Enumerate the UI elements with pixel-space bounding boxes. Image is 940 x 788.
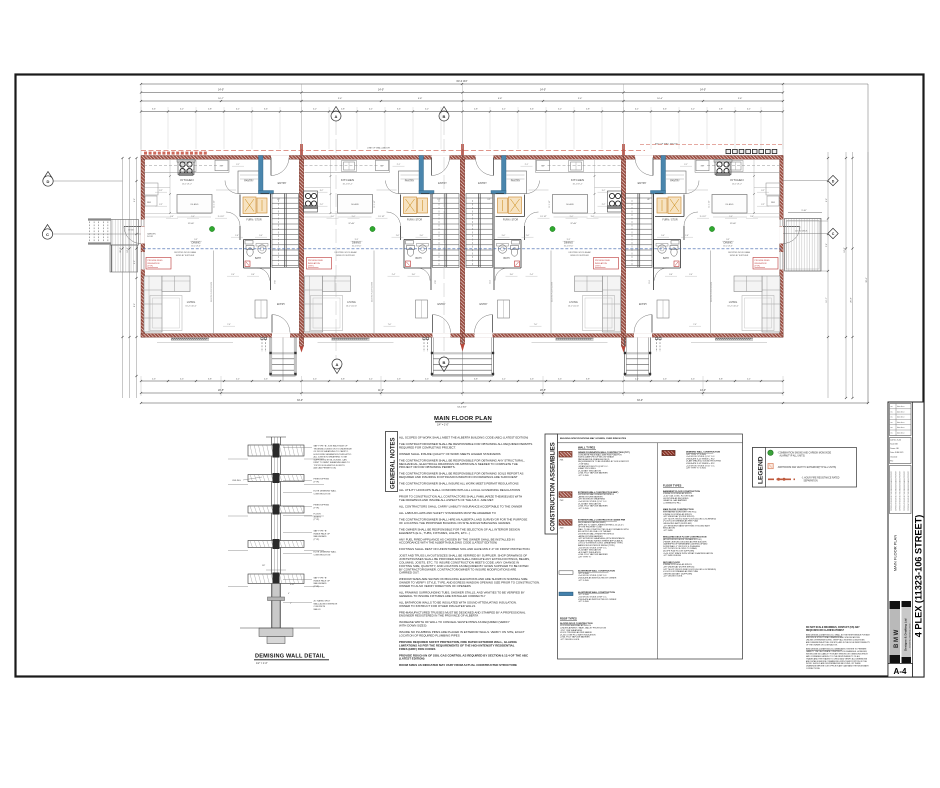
svg-text:PANTRY: PANTRY [405,180,415,183]
svg-text:9'-3": 9'-3" [567,239,571,241]
svg-text:11'-1 1/2": 11'-1 1/2" [709,200,711,208]
svg-text:C: C [46,232,49,237]
svg-text:16'-2"x10'-6": 16'-2"x10'-6" [568,306,579,308]
svg-text:5'-0": 5'-0" [502,235,506,237]
svg-text:PROVIDE RIGID: PROVIDE RIGID [148,260,164,262]
svg-text:FURN / STOR: FURN / STOR [662,219,678,222]
svg-text:FIRES (HIRF) FIRE CODES: FIRES (HIRF) FIRE CODES [399,647,436,651]
svg-text:11'-1 1/2": 11'-1 1/2" [549,200,551,208]
svg-text:SUPPORTED BY BLOCKING. CAN: SUPPORTED BY BLOCKING. CAN [314,458,348,461]
svg-text:BATH: BATH [504,257,510,260]
svg-text:GENERAL NOTES: GENERAL NOTES [391,437,397,489]
svg-text:ACCORDANCE WITH THE ALBERTA BU: ACCORDANCE WITH THE ALBERTA BUILDING COD… [399,541,497,545]
svg-text:2'-8": 2'-8" [341,109,345,111]
svg-text:14'-0": 14'-0" [700,89,706,92]
svg-text:4'-1": 4'-1" [502,109,506,111]
svg-text:(TYP.): (TYP.) [314,481,320,483]
svg-text:1'-6": 1'-6" [235,235,239,237]
svg-text:3'-1 1/2": 3'-1 1/2" [218,216,225,218]
svg-text:-1/2" GWB CEILING: -1/2" GWB CEILING [663,555,681,557]
svg-text:File:: File: [890,461,894,463]
svg-text:CLO: CLO [434,280,436,284]
svg-text:ALL LABOUR LAWS AND SAFETY STA: ALL LABOUR LAWS AND SAFETY STANDARDS MUS… [399,511,497,515]
svg-text:2'-8": 2'-8" [719,109,723,111]
svg-text:KITCHEN: KITCHEN [730,178,743,182]
svg-text:11'-6": 11'-6" [378,389,384,392]
svg-text:5'-5": 5'-5" [691,379,695,381]
svg-text:11'-1 1/2": 11'-1 1/2" [214,200,216,208]
svg-text:(AS CAN PERMITS US): (AS CAN PERMITS US) [314,467,337,470]
svg-text:3'-1 1/2": 3'-1 1/2" [700,216,707,218]
svg-text:SAF TYPE "B": SAF TYPE "B" [314,577,328,580]
svg-text:16'-2"x10'-6": 16'-2"x10'-6" [346,306,357,308]
svg-text:REQUIRED FOR COMPLETING PROJEC: REQUIRED FOR COMPLETING PROJECT. [399,445,456,449]
svg-text:FIRESTOPPING: FIRESTOPPING [314,505,330,507]
svg-text:2'-6": 2'-6" [738,98,743,100]
svg-text:A-4: A-4 [894,667,907,676]
svg-text:ALL SCOPES OF WORK SHALL MEET: ALL SCOPES OF WORK SHALL MEET THE ALBERT… [399,436,528,440]
svg-text:2'-3": 2'-3" [530,379,534,381]
svg-text:5'-2": 5'-2" [313,109,317,111]
svg-text:14'-0": 14'-0" [700,389,706,392]
svg-text:34'-0": 34'-0" [297,399,303,402]
svg-text:2'-3": 2'-3" [152,379,156,381]
svg-text:3'-2": 3'-2" [761,190,765,192]
svg-text:B: B [443,114,446,119]
svg-text:OF LOCATING THE PROPOSED BUILD: OF LOCATING THE PROPOSED BUILDING ON SIT… [399,521,510,525]
svg-text:ENGINEER REGISTERED IN THE PRO: ENGINEER REGISTERED IN THE PROVINCE OF A… [399,614,478,618]
svg-text:ENTRY: ENTRY [278,181,287,185]
svg-text:Drawn: GB: Drawn: GB [890,447,899,450]
svg-text:OF ROOF SHEATHING TO CARRY 1: OF ROOF SHEATHING TO CARRY 1 [314,450,350,453]
svg-text:-TW1: -TW1 [559,460,563,462]
svg-text:-1/2" GWB: -1/2" GWB [663,530,673,532]
svg-text:SAF TYPE "B": SAF TYPE "B" [314,530,328,533]
svg-text:DROPPED WOOD BEAM: DROPPED WOOD BEAM [335,251,357,254]
svg-text:THE CONTRACTOR/OWNER SHALL INS: THE CONTRACTOR/OWNER SHALL INSURE ALL WO… [399,482,519,486]
svg-text:14'-0": 14'-0" [218,89,224,92]
svg-text:INSIDE FACE OF: INSIDE FACE OF [314,580,331,583]
svg-text:2'-1": 2'-1" [397,164,401,166]
svg-text:2'-8": 2'-8" [474,109,478,111]
svg-text:CONSTRUCTION: CONSTRUCTION [314,555,331,557]
svg-text:38'-4": 38'-4" [866,277,868,282]
svg-text:D: D [832,179,835,183]
svg-text:DROPPED WOOD BEAM: DROPPED WOOD BEAM [174,251,196,254]
svg-text:16'-2"x10'-6": 16'-2"x10'-6" [727,306,738,308]
svg-text:4-1/2": 4-1/2" [290,584,295,586]
svg-text:DO NOT SCALE DRAWINGS, CONTACT: DO NOT SCALE DRAWINGS, CONTACT (US) ANY [806,626,860,629]
svg-text:-5/8" TYPE "X" G.W.B.: -5/8" TYPE "X" G.W.B. [686,468,707,470]
svg-text:5'-5": 5'-5" [180,379,184,381]
svg-text:ROOM SIZES AS INDICATED MAY VA: ROOM SIZES AS INDICATED MAY VARY FROM AC… [399,663,517,667]
svg-text:3'-6": 3'-6" [251,274,255,276]
svg-text:JOISTS: JOISTS [314,517,322,519]
svg-text:5'-0": 5'-0" [420,235,424,237]
svg-text:ALL JOINTS IN SHEATHING TO BE: ALL JOINTS IN SHEATHING TO BE [314,456,348,459]
svg-text:64'-0 3/4": 64'-0 3/4" [457,407,466,409]
svg-text:rev: rev [890,406,892,408]
svg-text:CLO: CLO [490,280,492,284]
svg-text:4'-1": 4'-1" [369,109,373,111]
svg-text:8'-2": 8'-2" [134,303,136,307]
svg-text:ISLAND: ISLAND [191,203,199,206]
svg-text:2'-2": 2'-2" [602,204,606,206]
svg-text:14'-0": 14'-0" [378,89,384,92]
svg-text:ALL UTILITY HOOKUPS SHALL CONF: ALL UTILITY HOOKUPS SHALL CONFORM WITH A… [399,488,520,492]
svg-text:9'-6": 9'-6" [134,198,136,202]
svg-text:5'-2": 5'-2" [691,109,695,111]
svg-text:18'-2": 18'-2" [127,247,129,252]
svg-text:KITCHEN: KITCHEN [341,178,354,182]
svg-text:1/2" = 1'-0": 1/2" = 1'-0" [256,662,268,665]
svg-text:LOCATION OF REQUIRED PLUMBING: LOCATION OF REQUIRED PLUMBING PIPES [399,634,460,638]
svg-text:CONCRETE: CONCRETE [314,606,326,608]
svg-text:FLOOR TYPES: FLOOR TYPES [663,483,682,487]
svg-text:1'-6": 1'-6" [396,235,400,237]
svg-text:5'-2": 5'-2" [558,109,562,111]
svg-text:KITCHEN: KITCHEN [571,178,584,182]
svg-text:ALARM(TYP ALL UNITS): ALARM(TYP ALL UNITS) [780,455,806,458]
svg-text:-1/2" G.W.B.: -1/2" G.W.B. [578,508,589,510]
svg-text:PANTRY: PANTRY [670,180,680,183]
svg-text:5/8": 5/8" [262,565,265,567]
svg-text:PROVIDE RIGID: PROVIDE RIGID [755,260,771,262]
svg-text:1/4" = 1'-0": 1/4" = 1'-0" [437,423,449,426]
svg-text:2'-2": 2'-2" [159,204,163,206]
svg-text:16'-1"x9'-6": 16'-1"x9'-6" [191,246,201,248]
svg-text:-5/8" TYPE "X": -5/8" TYPE "X" [578,557,591,559]
svg-text:2'-4": 2'-4" [392,274,396,276]
svg-text:(TYP.): (TYP.) [314,539,320,541]
svg-text:-1/2" G.W.B.: -1/2" G.W.B. [578,580,589,582]
svg-text:-TW3: -TW3 [559,528,563,530]
svg-text:OWNER SHALL INSURE QUALITY OF: OWNER SHALL INSURE QUALITY OF WORK MEETS… [399,452,501,456]
svg-text:ENTRY: ENTRY [479,303,487,306]
svg-text:2'-2": 2'-2" [761,204,765,206]
svg-text:SIZED BY SUPPLIER: SIZED BY SUPPLIER [336,255,355,257]
svg-text:ENTRY: ENTRY [277,303,285,306]
svg-text:3'-6": 3'-6" [397,109,401,111]
svg-text:2'-1": 2'-1" [747,379,751,381]
svg-text:LINE OF WALL ABOVE: LINE OF WALL ABOVE [367,146,390,149]
svg-text:ELITE DEMISING WALL: ELITE DEMISING WALL [314,551,338,554]
svg-text:INSULATION: INSULATION [595,262,607,265]
svg-text:INSULATION: INSULATION [755,262,767,265]
svg-text:OWNER TO ALSO VERIFY DIRECTION: OWNER TO ALSO VERIFY DIRECTION OF OPENER… [399,584,471,588]
svg-text:5'-8": 5'-8" [418,98,423,100]
svg-text:B: B [443,360,446,365]
svg-text:WALL TYPES: WALL TYPES [578,446,595,450]
svg-text:SAF TYPE "A" JOIN EACH SIDE OF: SAF TYPE "A" JOIN EACH SIDE OF [314,445,349,448]
svg-text:5'-2": 5'-2" [425,109,429,111]
svg-text:9'-3": 9'-3" [726,239,730,241]
svg-text:A: A [336,362,339,367]
svg-text:5'-0": 5'-0" [259,235,263,237]
svg-text:10'-7": 10'-7" [826,297,828,302]
svg-text:ENTRY: ENTRY [638,181,647,185]
svg-text:FURN / STOR: FURN / STOR [246,219,262,222]
svg-text:FRMT TO PAINT SHEATHING AND TO: FRMT TO PAINT SHEATHING AND TO [314,461,351,464]
svg-text:2'-4": 2'-4" [689,274,693,276]
svg-text:HOUR FIRE SEPARATION THRU ATTI: HOUR FIRE SEPARATION THRU ATTIC. [314,453,353,456]
svg-text:18'-2": 18'-2" [844,247,846,252]
svg-text:3'-6": 3'-6" [264,109,268,111]
svg-text:FOOTINGS SHALL REST ON UNDISTU: FOOTINGS SHALL REST ON UNDISTURBED SOIL … [399,547,530,551]
svg-text:ENTRY: ENTRY [437,303,445,306]
svg-text:WITH DOWN SIZES): WITH DOWN SIZES) [399,624,426,628]
svg-text:11-7/8 TJI FLOOR JOISTS: 11-7/8 TJI FLOOR JOISTS [552,281,554,302]
svg-text:11-7/8 TJI FLOOR JOISTS: 11-7/8 TJI FLOOR JOISTS [711,281,713,302]
svg-text:9'-6": 9'-6" [826,198,828,202]
svg-text:CARRIED OUT.: CARRIED OUT. [399,571,420,575]
svg-text:9'-10": 9'-10" [801,210,806,212]
svg-text:FIRESTOPPING: FIRESTOPPING [314,479,330,481]
svg-text:KITCHEN: KITCHEN [180,178,193,182]
svg-text:WALLBOARD: WALLBOARD [314,582,327,585]
svg-text:B M W: B M W [894,629,900,648]
svg-text:rev: rev [890,427,892,429]
svg-text:5'-4": 5'-4" [826,243,828,247]
svg-text:INSULATION: INSULATION [308,262,320,265]
svg-text:BATH: BATH [255,257,261,260]
svg-text:WALLBOARD: WALLBOARD [314,535,327,538]
svg-text:3'-2": 3'-2" [602,190,606,192]
svg-text:26'-8": 26'-8" [120,247,122,252]
svg-text:32"x80": 32"x80" [570,223,577,225]
svg-text:LIVING: LIVING [569,300,578,304]
svg-text:14'-0": 14'-0" [540,89,546,92]
svg-text:20'-5": 20'-5" [540,389,546,392]
svg-text:(LATEST EDITION): (LATEST EDITION) [399,657,425,661]
svg-text:LIVING: LIVING [187,300,196,304]
svg-text:OF THE OWNER OR CONTRACTOR.: OF THE OWNER OR CONTRACTOR. [806,643,838,646]
svg-text:ELITE DEMISING WALL: ELITE DEMISING WALL [314,490,338,493]
svg-text:-1 HOUR FIRE RESISTANCE RATED: -1 HOUR FIRE RESISTANCE RATED [802,476,840,479]
svg-text:ENTRY: ENTRY [639,303,647,306]
svg-text:ISLAND: ISLAND [726,203,734,206]
svg-text:32"x80": 32"x80" [730,223,737,225]
svg-text:MAIN FLOOR PLAN: MAIN FLOOR PLAN [434,416,492,422]
svg-text:PROVIDE RIGID: PROVIDE RIGID [595,260,611,262]
svg-text:CLO: CLO [273,280,275,284]
svg-text:rev: rev [890,417,892,419]
svg-text:4'-2": 4'-2" [134,260,136,264]
svg-text:3'-6": 3'-6" [530,109,534,111]
svg-text:SIZED BY SUPPLIER: SIZED BY SUPPLIER [570,255,589,257]
svg-text:-COMBINATION SMOKE AND CARBON: -COMBINATION SMOKE AND CARBON MONOXIDE [778,451,832,454]
svg-text:7'-0": 7'-0" [693,324,697,326]
svg-text:20'-5": 20'-5" [218,389,224,392]
svg-text:THE DRAWINGS AND INSURE ALL A: THE DRAWINGS AND INSURE ALL ASPECTS OF T… [399,498,494,502]
svg-text:TOP BY NON-VENTED SOFFITS: TOP BY NON-VENTED SOFFITS [314,465,346,467]
svg-text:3'-6": 3'-6" [412,274,416,276]
svg-text:2'-3": 2'-3" [663,379,667,381]
svg-text:rev: rev [890,411,892,413]
svg-text:PANTRY: PANTRY [244,180,254,183]
svg-text:BUILDING SPECIFICATIONS MAY GO: BUILDING SPECIFICATIONS MAY GOVERN, OVER… [560,437,627,440]
svg-text:BATH: BATH [416,257,422,260]
svg-text:ISLAND: ISLAND [566,203,574,206]
svg-text:ALL CONTRACTORS SHALL CARRY LI: ALL CONTRACTORS SHALL CARRY LIABILITY IN… [399,505,522,509]
svg-text:3'-6": 3'-6" [152,109,156,111]
svg-text:Job No: 21-04: Job No: 21-04 [890,440,901,442]
svg-text:2'-1": 2'-1" [684,164,688,166]
svg-text:FLOOR: FLOOR [314,514,322,516]
svg-text:16'-1"x9'-2": 16'-1"x9'-2" [342,184,352,186]
svg-text:(TYP.): (TYP.) [314,519,320,521]
svg-text:16'-1"x9'-6": 16'-1"x9'-6" [723,246,733,248]
svg-text:3'-8": 3'-8" [719,379,723,381]
svg-text:(TYP.): (TYP.) [314,586,320,588]
svg-text:2'-1": 2'-1" [236,164,240,166]
svg-text:26'-8": 26'-8" [851,297,853,302]
svg-text:4'-1": 4'-1" [747,109,751,111]
svg-text:5'-5": 5'-5" [425,379,429,381]
svg-text:10'x10' DECK: 10'x10' DECK [795,231,808,233]
svg-text:rev: rev [890,433,892,435]
svg-text:LIVING: LIVING [729,300,738,304]
svg-text:2'-1": 2'-1" [236,379,240,381]
svg-text:CONSTRUCTION ASSEMBLIES: CONSTRUCTION ASSEMBLIES [551,442,557,531]
svg-text:3'-1 1/2": 3'-1 1/2" [540,216,547,218]
svg-text:2'-4": 2'-4" [578,98,583,100]
svg-text:ENTRY: ENTRY [438,181,447,185]
svg-text:-COMPACTED FILL: -COMPACTED FILL [663,501,682,504]
svg-text:2'-1": 2'-1" [502,379,506,381]
svg-text:Designs & Drafting Ltd: Designs & Drafting Ltd [904,618,908,651]
svg-text:16'-1"x9'-2": 16'-1"x9'-2" [182,184,192,186]
svg-text:32"x80": 32"x80" [348,223,355,225]
svg-text:D: D [47,179,50,184]
svg-text:Date: JUNE 2021: Date: JUNE 2021 [890,451,903,454]
svg-text:3'-8": 3'-8" [474,379,478,381]
svg-text:TRUSS/BLOCKING ON TO UNDERSIDE: TRUSS/BLOCKING ON TO UNDERSIDE [314,448,353,450]
svg-text:4'-1": 4'-1" [236,109,240,111]
svg-text:9'-3": 9'-3" [355,239,359,241]
svg-text:2'-2": 2'-2" [320,204,324,206]
svg-text:3'-6": 3'-6" [663,109,667,111]
svg-text:34'-0": 34'-0" [637,399,643,402]
svg-text:3'-1 1/2": 3'-1 1/2" [378,216,385,218]
svg-text:ISLAND: ISLAND [351,203,359,206]
svg-text:SIZED BY SUPPLIER: SIZED BY SUPPLIER [176,255,195,257]
svg-text:1'-6": 1'-6" [685,235,689,237]
svg-text:FURN / STOR: FURN / STOR [503,219,519,222]
svg-text:INSIDE FACE OF: INSIDE FACE OF [314,533,331,536]
svg-text:7'-0": 7'-0" [227,324,231,326]
svg-text:-1/2" CEILING G.W.B.: -1/2" CEILING G.W.B. [560,639,580,641]
svg-text:-1/2" CEILING G.W.B.: -1/2" CEILING G.W.B. [663,576,683,578]
svg-text:3'-6": 3'-6" [510,274,514,276]
svg-text:4 PLEX (11323-106 STREET): 4 PLEX (11323-106 STREET) [914,515,924,638]
svg-text:PROVIDE RIGID: PROVIDE RIGID [308,260,324,262]
svg-text:ROOF TYPES: ROOF TYPES [560,616,577,620]
svg-text:5'-2": 5'-2" [180,109,184,111]
svg-text:4'-1": 4'-1" [635,109,639,111]
svg-text:CEILING: CEILING [232,480,241,482]
svg-text:10'-7": 10'-7" [218,98,224,100]
svg-text:5'-5": 5'-5" [558,379,562,381]
svg-text:CORRECTIONS.: CORRECTIONS. [806,668,821,670]
svg-text:64'-0 3/4": 64'-0 3/4" [457,79,468,83]
svg-text:7'-0": 7'-0" [534,324,538,326]
svg-text:SEPARATION: SEPARATION [804,480,819,483]
svg-text:PANTRY: PANTRY [511,180,521,183]
svg-text:OWNER TO INSTRUCT FOR OTHER IN: OWNER TO INSTRUCT FOR OTHER INSULATED WA… [399,604,475,608]
svg-text:2'-1": 2'-1" [635,379,639,381]
svg-text:DROPPED WOOD BEAM: DROPPED WOOD BEAM [569,251,591,254]
svg-text:2'-4": 2'-4" [338,98,343,100]
svg-text:GENERAL TO INSURE FIXTURES ARE: GENERAL TO INSURE FIXTURES ARE INSTALLED… [399,594,486,598]
svg-text:REQUIRED AND INSURING FOOTINGS: REQUIRED AND INSURING FOOTINGS/FOUNDATIO… [399,475,518,479]
svg-text:WALLS: WALLS [314,608,322,611]
svg-text:32"x80": 32"x80" [188,223,195,225]
svg-text:10'-4": 10'-4" [657,98,663,100]
svg-text:Checked:: Checked: [890,456,898,458]
svg-text:DROPPED WOOD BEAM: DROPPED WOOD BEAM [728,251,750,254]
svg-text:-BATHROOM FAN VENT TO EXTERIOR: -BATHROOM FAN VENT TO EXTERIOR(TYP ALL U… [778,466,837,469]
svg-text:ENTRY: ENTRY [478,181,487,185]
svg-text:GARDEN: GARDEN [147,233,156,236]
svg-text:C: C [832,232,835,236]
svg-text:(TYP.): (TYP.) [314,507,320,509]
svg-text:11-7/8 TJI FLOOR JOISTS: 11-7/8 TJI FLOOR JOISTS [211,281,213,302]
svg-text:3'-8": 3'-8" [341,379,345,381]
svg-text:DEMISING WALL DETAIL: DEMISING WALL DETAIL [255,654,326,660]
svg-text:16'-1"x9'-6": 16'-1"x9'-6" [352,246,362,248]
svg-text:2'-4": 2'-4" [530,274,534,276]
svg-text:2'-8": 2'-8" [586,109,590,111]
svg-text:16'-1"x9'-2": 16'-1"x9'-2" [732,184,742,186]
svg-text:5'-0": 5'-0" [661,235,665,237]
svg-text:-1/2" G.W.B.: -1/2" G.W.B. [578,475,589,477]
svg-text:-TW2: -TW2 [559,500,563,502]
svg-text:3'-8": 3'-8" [208,379,212,381]
svg-text:-1/2" G.W.B.: -1/2" G.W.B. [578,601,589,603]
svg-text:REQD INFO OR CLARIFICATIONS?: REQD INFO OR CLARIFICATIONS? [806,629,845,632]
svg-text:MAIN FLOOR PLAN: MAIN FLOOR PLAN [893,535,898,572]
svg-text:Scale: AS: Scale: AS [890,443,898,446]
svg-text:3'-2": 3'-2" [320,190,324,192]
svg-text:2'-4": 2'-4" [231,274,235,276]
svg-text:3'-2": 3'-2" [159,190,163,192]
svg-text:1'-6": 1'-6" [526,235,530,237]
svg-text:SIZED BY SUPPLIER: SIZED BY SUPPLIER [730,255,749,257]
svg-text:9'-3": 9'-3" [194,239,198,241]
svg-text:5'-8": 5'-8" [498,98,503,100]
svg-text:11-7/8 TJI FLOOR JOISTS: 11-7/8 TJI FLOOR JOISTS [372,281,374,302]
svg-text:5'-5": 5'-5" [313,379,317,381]
svg-text:2'-3": 2'-3" [264,379,268,381]
svg-text:11'-1 1/2": 11'-1 1/2" [374,200,376,208]
svg-text:2hr RATED SPLIT: 2hr RATED SPLIT [314,600,332,603]
svg-text:16'-1"x9'-2": 16'-1"x9'-2" [572,184,582,186]
svg-text:LIVING: LIVING [347,300,356,304]
svg-text:DOOR: DOOR [147,236,154,238]
svg-text:BATH: BATH [663,257,669,260]
svg-text:2'-3": 2'-3" [397,379,401,381]
svg-text:16'-2"x10'-6": 16'-2"x10'-6" [185,306,196,308]
svg-text:LEGEND: LEGEND [758,456,765,484]
svg-text:2'-1": 2'-1" [369,379,373,381]
svg-text:3'-8": 3'-8" [586,379,590,381]
svg-text:16'-1"x9'-6": 16'-1"x9'-6" [564,246,574,248]
svg-text:2'-8": 2'-8" [208,109,212,111]
svg-text:A: A [335,114,338,119]
svg-text:7'-0": 7'-0" [388,324,392,326]
svg-text:INSULATION: INSULATION [148,262,160,265]
